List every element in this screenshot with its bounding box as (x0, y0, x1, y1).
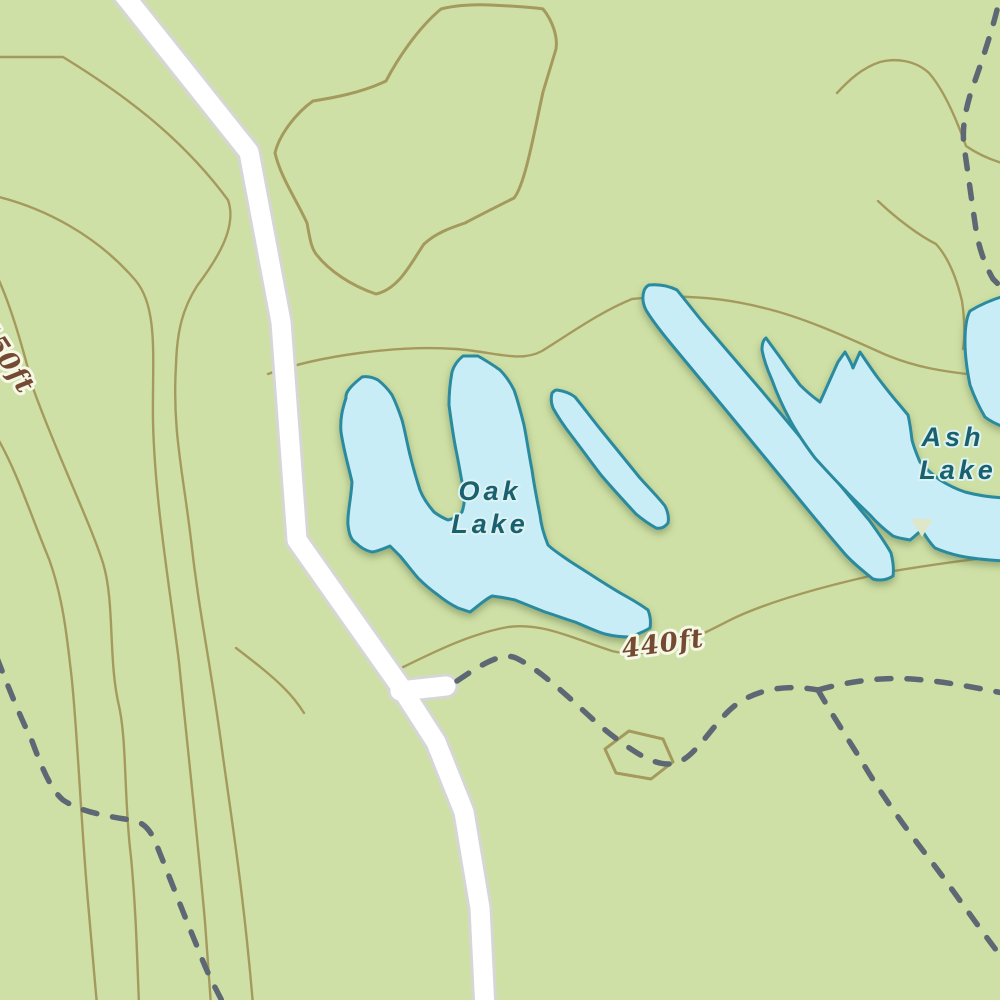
oak-lake-label-line1: Oak (458, 476, 521, 506)
map-stage: Oak Lake Ash Lake 440ft 450ft (0, 0, 1000, 1000)
road-spur-surface (400, 686, 446, 691)
map-canvas[interactable]: Oak Lake Ash Lake 440ft 450ft (0, 0, 1000, 1000)
ash-lake-label-line1: Ash (920, 422, 984, 452)
ash-lake-label-line2: Lake (919, 455, 997, 485)
oak-lake-label-line2: Lake (451, 509, 529, 539)
